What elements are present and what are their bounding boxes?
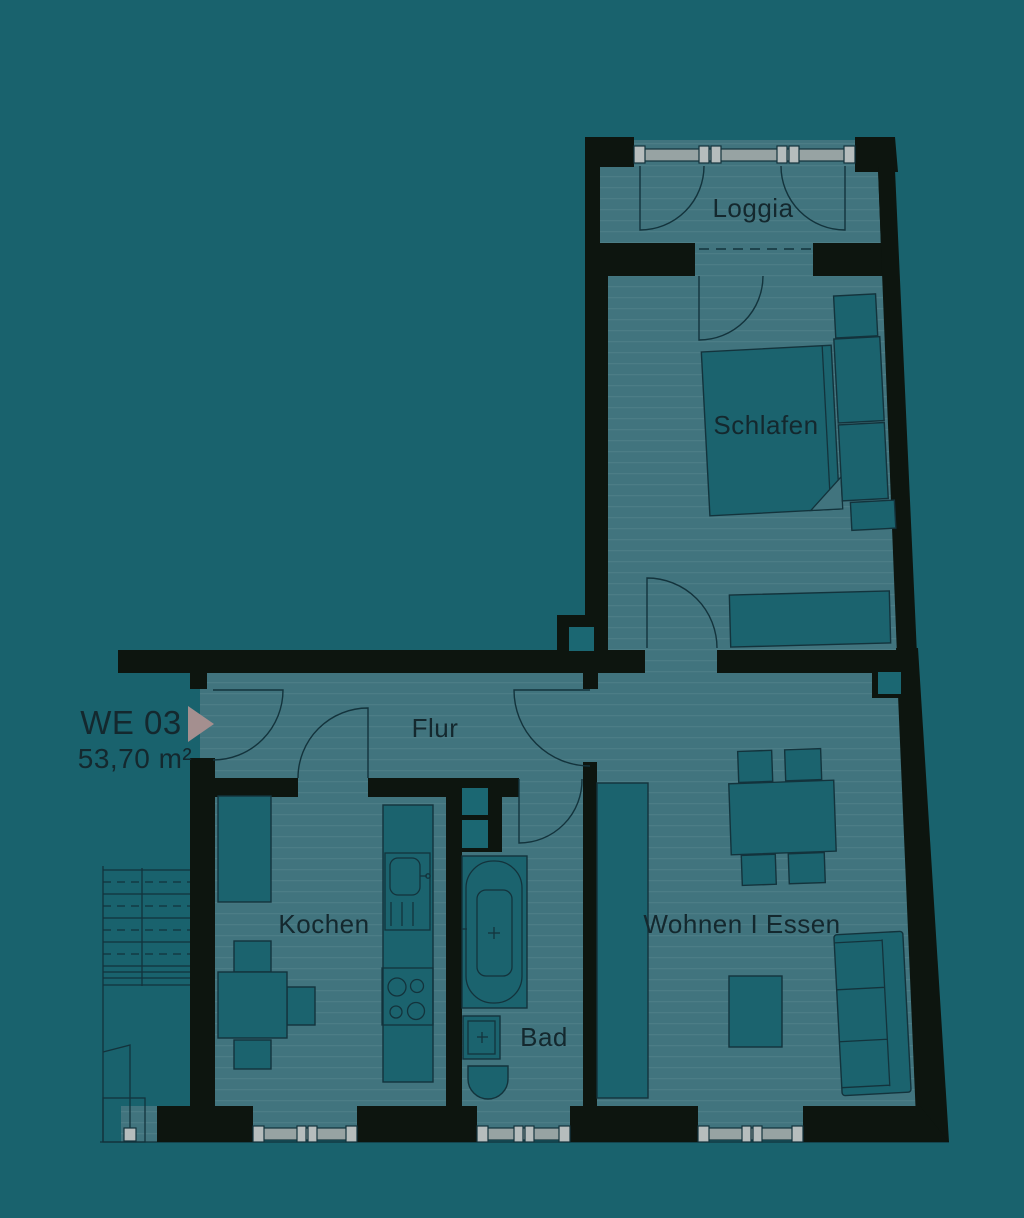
room-label-bad: Bad bbox=[520, 1022, 568, 1052]
window-kitchen bbox=[253, 1106, 357, 1142]
floor-lower-wing bbox=[200, 652, 932, 1140]
shaft-corner bbox=[569, 627, 594, 651]
bathtub bbox=[462, 856, 527, 1008]
wall-flur-bottom-left bbox=[213, 778, 298, 797]
sofa bbox=[834, 931, 911, 1095]
sideboard bbox=[729, 591, 890, 647]
wall-loggia-top-right bbox=[855, 137, 898, 172]
shaft-bad-2 bbox=[462, 820, 488, 848]
kitchen-chair bbox=[234, 1040, 271, 1069]
toilet bbox=[468, 1066, 508, 1099]
dining-chair bbox=[738, 750, 773, 782]
bed-pillow-2 bbox=[838, 423, 888, 501]
unit-label: WE 03 bbox=[80, 704, 182, 741]
dining-chair bbox=[741, 854, 776, 885]
kitchen-chair bbox=[287, 987, 315, 1025]
wall-bad-right bbox=[583, 762, 597, 1142]
entry-door-post bbox=[124, 1128, 136, 1141]
kitchen-table bbox=[218, 972, 287, 1038]
wall-bottom-b bbox=[357, 1106, 477, 1142]
dining-chair bbox=[785, 749, 822, 781]
kitchen-counter bbox=[383, 805, 433, 1082]
wardrobe bbox=[597, 783, 648, 1098]
room-label-loggia: Loggia bbox=[712, 193, 793, 223]
washbasin bbox=[463, 1016, 500, 1059]
kitchen-chair bbox=[234, 941, 271, 972]
wall-left bbox=[190, 758, 215, 1142]
room-label-flur: Flur bbox=[412, 713, 459, 743]
wall-entry-stub bbox=[190, 673, 207, 689]
loggia-railing bbox=[634, 146, 855, 163]
bed-pillow-1 bbox=[834, 337, 884, 423]
dining-chair bbox=[788, 853, 825, 884]
room-label-wohnen: Wohnen I Essen bbox=[643, 909, 840, 939]
window-bad bbox=[477, 1106, 570, 1142]
window-wohnen bbox=[698, 1106, 803, 1142]
wall-bottom-a bbox=[157, 1106, 253, 1142]
shaft-right-wall bbox=[878, 672, 901, 694]
nightstand-top bbox=[834, 294, 878, 338]
staircase-treads bbox=[103, 870, 190, 985]
kitchen-cupboard bbox=[218, 796, 271, 902]
shaft-bad-1 bbox=[462, 788, 488, 815]
wall-door-stub-upper bbox=[583, 670, 598, 689]
room-label-schlafen: Schlafen bbox=[713, 410, 818, 440]
unit-area: 53,70 m² bbox=[78, 743, 193, 774]
room-label-kochen: Kochen bbox=[278, 909, 369, 939]
floor-plan: Loggia Schlafen Flur Kochen Bad Wohnen I… bbox=[0, 0, 1024, 1218]
dining-table bbox=[729, 780, 836, 855]
wall-bottom-c bbox=[570, 1106, 698, 1142]
nightstand-bottom bbox=[850, 500, 895, 530]
coffee-table bbox=[729, 976, 782, 1047]
wall-schlafen-left bbox=[585, 243, 608, 655]
